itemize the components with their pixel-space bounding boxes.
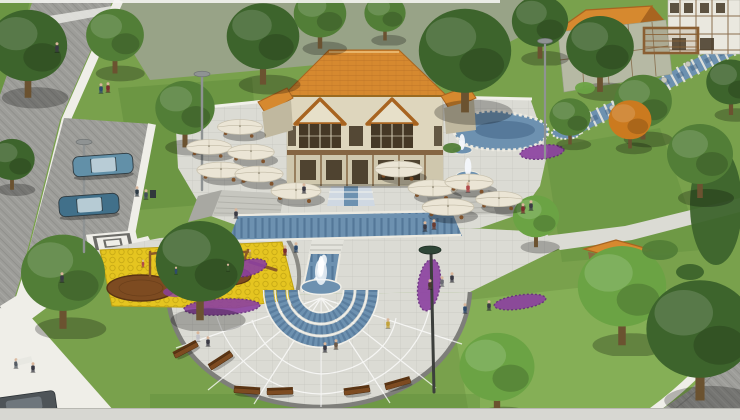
luggage xyxy=(150,190,156,198)
pergola xyxy=(644,28,698,53)
render-canvas xyxy=(0,0,740,420)
tree xyxy=(0,139,35,196)
bench xyxy=(267,387,294,399)
park-render-svg xyxy=(0,0,740,420)
timber-band xyxy=(287,150,443,155)
top-edge-strip xyxy=(0,0,500,3)
tree xyxy=(0,10,68,109)
bottom-edge-strip xyxy=(0,409,740,420)
pool-steps xyxy=(308,240,344,256)
